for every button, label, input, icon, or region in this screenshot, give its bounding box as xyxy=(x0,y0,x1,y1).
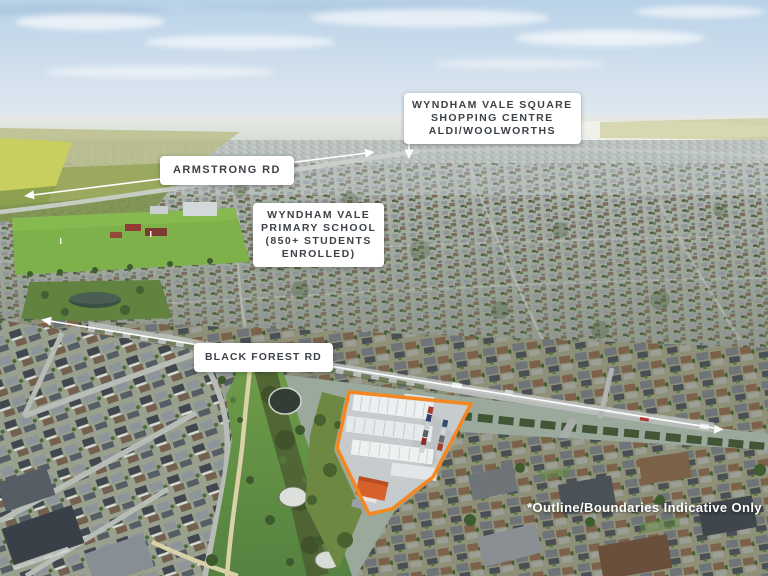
callout-line: (850+ STUDENTS xyxy=(261,235,376,248)
aerial-marketing-image: WYNDHAM VALE SQUARE SHOPPING CENTRE ALDI… xyxy=(0,0,768,576)
school-hall-roof xyxy=(183,202,217,216)
aerial-photo xyxy=(0,0,768,576)
callout-line: ALDI/WOOLWORTHS xyxy=(412,125,573,138)
disclaimer-text: *Outline/Boundaries Indicative Only xyxy=(527,500,762,515)
callout-line: BLACK FOREST RD xyxy=(205,351,322,364)
pond xyxy=(279,487,307,507)
callout-armstrong-rd: ARMSTRONG RD xyxy=(160,156,294,185)
callout-line: ENROLLED) xyxy=(261,248,376,261)
callout-line: WYNDHAM VALE xyxy=(261,209,376,222)
callout-black-forest-rd: BLACK FOREST RD xyxy=(194,343,333,372)
callout-line: WYNDHAM VALE SQUARE xyxy=(412,99,573,112)
callout-shopping-centre: WYNDHAM VALE SQUARE SHOPPING CENTRE ALDI… xyxy=(404,93,581,144)
wetland-strip xyxy=(20,280,172,323)
callout-primary-school: WYNDHAM VALE PRIMARY SCHOOL (850+ STUDEN… xyxy=(253,203,384,267)
callout-line: PRIMARY SCHOOL xyxy=(261,222,376,235)
callout-line: ARMSTRONG RD xyxy=(173,164,281,177)
callout-line: SHOPPING CENTRE xyxy=(412,112,573,125)
school-building-roof xyxy=(125,224,141,231)
